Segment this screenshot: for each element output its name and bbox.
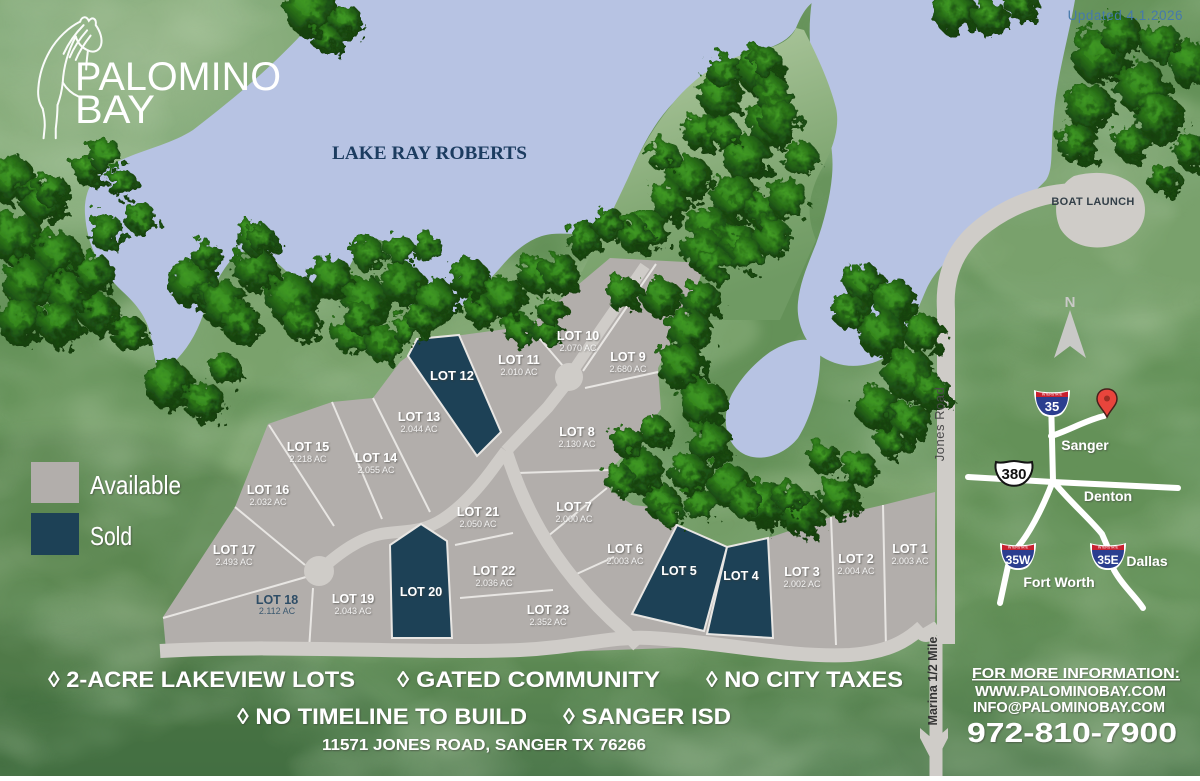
svg-text:WWW.PALOMINOBAY.COM: WWW.PALOMINOBAY.COM — [975, 684, 1166, 700]
svg-text:LOT 19: LOT 19 — [332, 592, 374, 606]
svg-text:LOT 11: LOT 11 — [498, 353, 540, 367]
svg-text:BOAT LAUNCH: BOAT LAUNCH — [1051, 196, 1134, 208]
svg-text:2.130 AC: 2.130 AC — [558, 439, 596, 449]
svg-text:LOT 13: LOT 13 — [398, 410, 440, 424]
svg-text:2.032 AC: 2.032 AC — [249, 497, 287, 507]
svg-text:LAKE RAY ROBERTS: LAKE RAY ROBERTS — [332, 143, 527, 164]
svg-text:972-810-7900: 972-810-7900 — [967, 717, 1177, 748]
svg-text:LOT 18: LOT 18 — [256, 593, 298, 607]
svg-text:LOT 5: LOT 5 — [661, 564, 696, 578]
svg-text:LOT 9: LOT 9 — [610, 350, 645, 364]
svg-text:LOT 20: LOT 20 — [400, 585, 442, 599]
svg-text:2.055 AC: 2.055 AC — [357, 465, 395, 475]
svg-text:◊ NO TIMELINE TO BUILD: ◊ NO TIMELINE TO BUILD — [237, 704, 527, 729]
svg-text:Marina 1/2 Mile: Marina 1/2 Mile — [926, 636, 940, 725]
svg-text:LOT 7: LOT 7 — [556, 500, 591, 514]
svg-text:LOT 12: LOT 12 — [430, 368, 474, 383]
svg-text:11571 JONES ROAD, SANGER TX 76: 11571 JONES ROAD, SANGER TX 76266 — [322, 737, 646, 754]
svg-text:2.043 AC: 2.043 AC — [334, 606, 372, 616]
svg-text:2.003 AC: 2.003 AC — [891, 556, 929, 566]
svg-text:2.493 AC: 2.493 AC — [215, 557, 253, 567]
svg-text:2.004 AC: 2.004 AC — [837, 566, 875, 576]
svg-text:LOT 15: LOT 15 — [287, 440, 329, 454]
svg-text:INTERSTATE: INTERSTATE — [1008, 546, 1029, 550]
svg-text:BAY: BAY — [75, 88, 155, 132]
svg-text:2.010 AC: 2.010 AC — [500, 367, 538, 377]
svg-text:LOT 14: LOT 14 — [355, 451, 397, 465]
svg-text:LOT 22: LOT 22 — [473, 564, 515, 578]
svg-text:Sold: Sold — [90, 521, 132, 551]
svg-text:LOT 4: LOT 4 — [723, 569, 758, 583]
svg-text:Updated 4.1.2026: Updated 4.1.2026 — [1068, 8, 1183, 23]
svg-text:35W: 35W — [1006, 553, 1031, 567]
svg-text:LOT 6: LOT 6 — [607, 542, 642, 556]
svg-text:LOT 2: LOT 2 — [838, 552, 873, 566]
svg-text:LOT 10: LOT 10 — [557, 329, 599, 343]
svg-text:2.112 AC: 2.112 AC — [259, 606, 296, 616]
svg-text:N: N — [1065, 294, 1076, 311]
svg-text:2.036 AC: 2.036 AC — [475, 578, 513, 588]
svg-text:Denton: Denton — [1084, 488, 1132, 504]
svg-text:INFO@PALOMINOBAY.COM: INFO@PALOMINOBAY.COM — [973, 700, 1165, 716]
svg-text:2.003 AC: 2.003 AC — [606, 556, 644, 566]
svg-text:◊ SANGER ISD: ◊ SANGER ISD — [563, 704, 731, 729]
svg-text:2.680 AC: 2.680 AC — [609, 364, 647, 374]
svg-text:Dallas: Dallas — [1126, 553, 1167, 569]
svg-text:Sanger: Sanger — [1061, 437, 1109, 453]
svg-text:2.000 AC: 2.000 AC — [555, 514, 593, 524]
svg-text:LOT 23: LOT 23 — [527, 603, 569, 617]
svg-text:Jones Road: Jones Road — [932, 387, 947, 461]
svg-text:2.070 AC: 2.070 AC — [559, 343, 597, 353]
svg-text:LOT 17: LOT 17 — [213, 543, 255, 557]
svg-text:2.352 AC: 2.352 AC — [529, 617, 567, 627]
svg-text:2.044 AC: 2.044 AC — [400, 424, 438, 434]
svg-text:FOR MORE INFORMATION:: FOR MORE INFORMATION: — [972, 666, 1180, 682]
svg-text:35: 35 — [1045, 399, 1059, 414]
svg-text:LOT 21: LOT 21 — [457, 505, 499, 519]
svg-text:380: 380 — [1001, 466, 1026, 483]
svg-text:LOT 8: LOT 8 — [559, 425, 594, 439]
svg-text:35E: 35E — [1097, 553, 1118, 567]
svg-text:LOT 1: LOT 1 — [892, 542, 927, 556]
svg-text:INTERSTATE: INTERSTATE — [1042, 393, 1063, 397]
svg-text:LOT 3: LOT 3 — [784, 565, 819, 579]
svg-text:Available: Available — [90, 470, 181, 500]
svg-text:2.050 AC: 2.050 AC — [459, 519, 497, 529]
svg-text:◊ GATED COMMUNITY: ◊ GATED COMMUNITY — [397, 667, 660, 692]
svg-text:◊ NO CITY TAXES: ◊ NO CITY TAXES — [706, 667, 903, 692]
svg-text:◊ 2-ACRE LAKEVIEW LOTS: ◊ 2-ACRE LAKEVIEW LOTS — [48, 667, 355, 692]
svg-text:Fort Worth: Fort Worth — [1023, 574, 1094, 590]
svg-text:2.002 AC: 2.002 AC — [783, 579, 821, 589]
svg-text:INTERSTATE: INTERSTATE — [1098, 546, 1119, 550]
svg-text:2.218 AC: 2.218 AC — [289, 454, 327, 464]
svg-text:LOT 16: LOT 16 — [247, 483, 289, 497]
